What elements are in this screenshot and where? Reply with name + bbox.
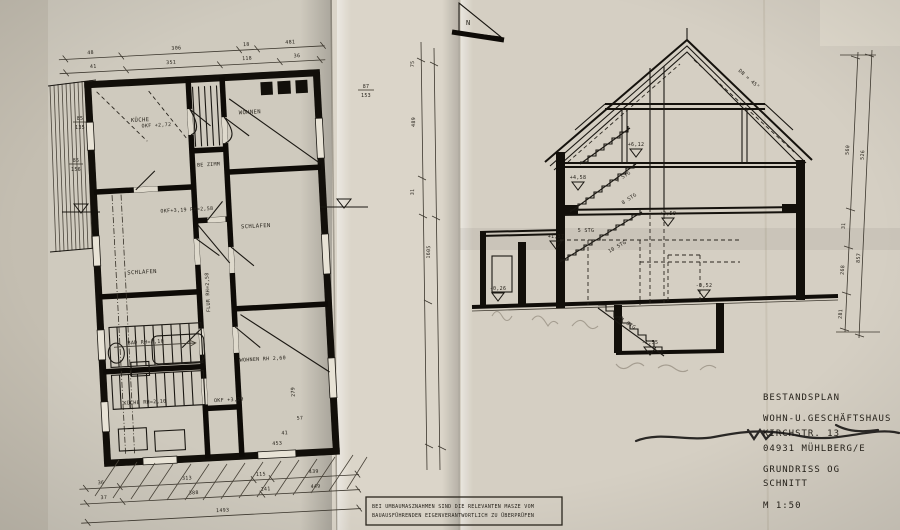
basement-floor [616,351,724,353]
svg-text:41: 41 [281,430,288,436]
svg-text:-1,55: -1,55 [642,340,659,346]
svg-text:37: 37 [100,495,107,501]
svg-text:87: 87 [363,84,370,90]
svg-text:281: 281 [838,309,845,319]
note-line-1: BEI UMBAUMASZNAHMEN SIND DIE RELEVANTEN … [372,504,534,510]
room-label-wohnen-top: WOHNEN [239,109,262,116]
svg-text:156: 156 [71,167,81,173]
svg-text:75: 75 [410,61,416,68]
svg-text:118: 118 [242,56,252,63]
svg-text:453: 453 [272,441,282,448]
svg-text:481: 481 [285,39,295,46]
title-city: 04931 MÜHLBERG/E [763,443,866,454]
svg-text:85: 85 [77,116,84,122]
svg-text:+1,37: +1,37 [548,234,565,240]
chimney-blocks [260,80,308,95]
north-label: N [466,19,470,27]
svg-text:526: 526 [860,150,867,160]
plan-total-width: 1493 [216,507,230,514]
svg-text:268: 268 [840,265,847,275]
svg-text:+6,12: +6,12 [628,142,645,148]
svg-text:1605: 1605 [426,245,432,258]
svg-text:313: 313 [182,475,192,482]
stair-label-5: 5 STG [578,228,595,234]
svg-text:18: 18 [243,42,250,48]
svg-text:41: 41 [90,64,97,70]
title-scale: M 1:50 [763,501,802,511]
svg-text:135: 135 [75,125,85,131]
title-project: BESTANDSPLAN [763,393,840,403]
svg-text:279: 279 [290,387,297,397]
svg-text:857: 857 [856,253,863,263]
svg-text:+4,58: +4,58 [570,175,587,181]
svg-text:153: 153 [361,93,371,99]
svg-text:31: 31 [841,222,847,229]
title-drawing-2: SCHNITT [763,479,808,489]
photographed-blueprint: N 85 135 85 156 [0,0,900,530]
svg-text:36: 36 [294,53,301,59]
title-drawing-1: GRUNDRISS OG [763,465,840,475]
svg-text:115: 115 [256,471,266,478]
svg-text:57: 57 [297,415,304,421]
blueprint-svg: N 85 135 85 156 [0,0,900,530]
note-line-2: BAUAUSFÜHRENDEN EIGENVERANTWORTLICH ZU Ü… [372,512,534,519]
svg-text:351: 351 [166,60,176,67]
svg-text:85: 85 [73,158,80,164]
svg-text:560: 560 [845,145,852,155]
svg-text:306: 306 [171,45,181,52]
title-building: WOHN-U.GESCHÄFTSHAUS [763,413,891,424]
svg-text:-0,26: -0,26 [490,286,507,292]
svg-text:489: 489 [411,117,417,127]
svg-text:388: 388 [189,490,199,497]
svg-text:48: 48 [87,50,94,56]
room-label-kammer: BE ZIMM [197,161,220,168]
svg-text:-0,52: -0,52 [696,283,713,289]
svg-text:449: 449 [310,484,320,491]
svg-text:31: 31 [410,189,416,196]
svg-text:+3,59: +3,59 [660,211,677,217]
